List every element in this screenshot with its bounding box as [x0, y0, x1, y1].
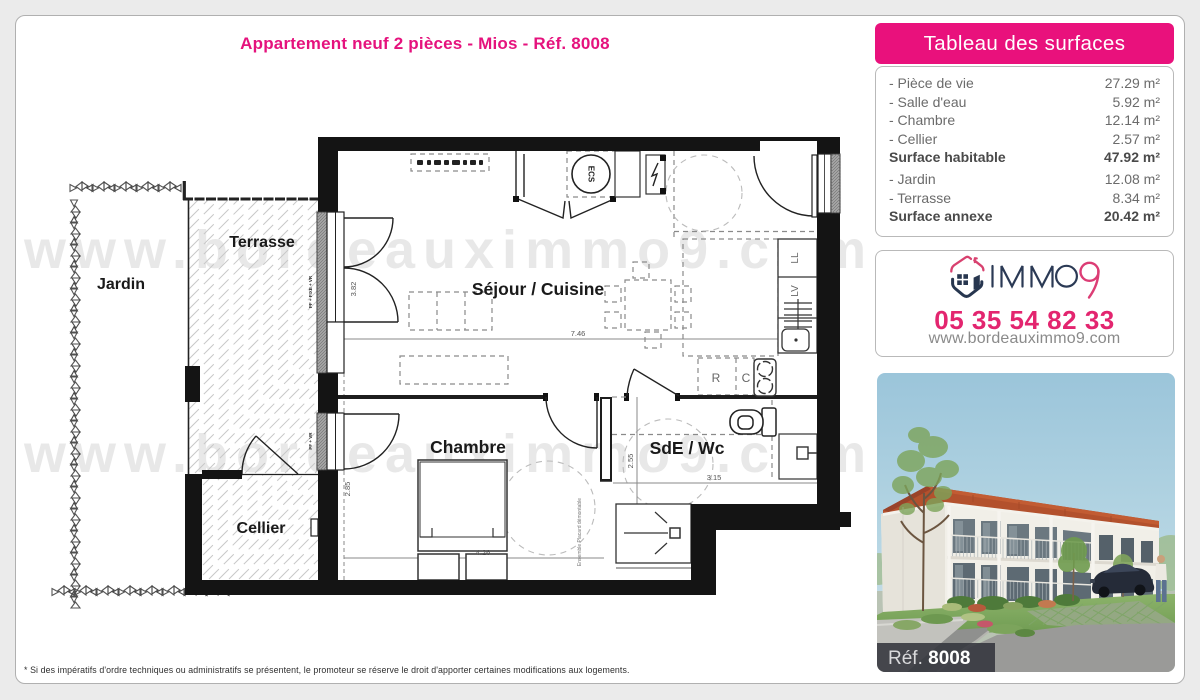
svg-text:Réf. 8008: Réf. 8008	[888, 648, 970, 669]
